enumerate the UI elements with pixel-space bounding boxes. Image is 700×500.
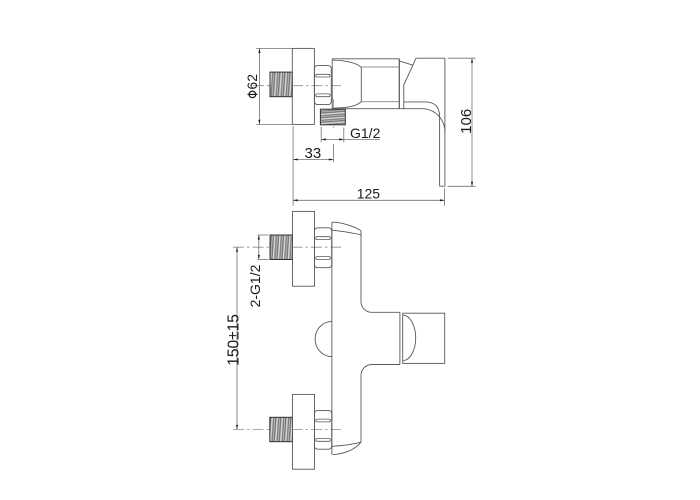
- svg-text:106: 106: [458, 109, 475, 134]
- svg-text:125: 125: [357, 186, 381, 202]
- svg-text:150±15: 150±15: [225, 314, 242, 366]
- svg-text:G1/2: G1/2: [350, 125, 381, 141]
- svg-text:2-G1/2: 2-G1/2: [247, 264, 263, 307]
- svg-text:62: 62: [244, 74, 260, 90]
- svg-text:33: 33: [305, 145, 322, 162]
